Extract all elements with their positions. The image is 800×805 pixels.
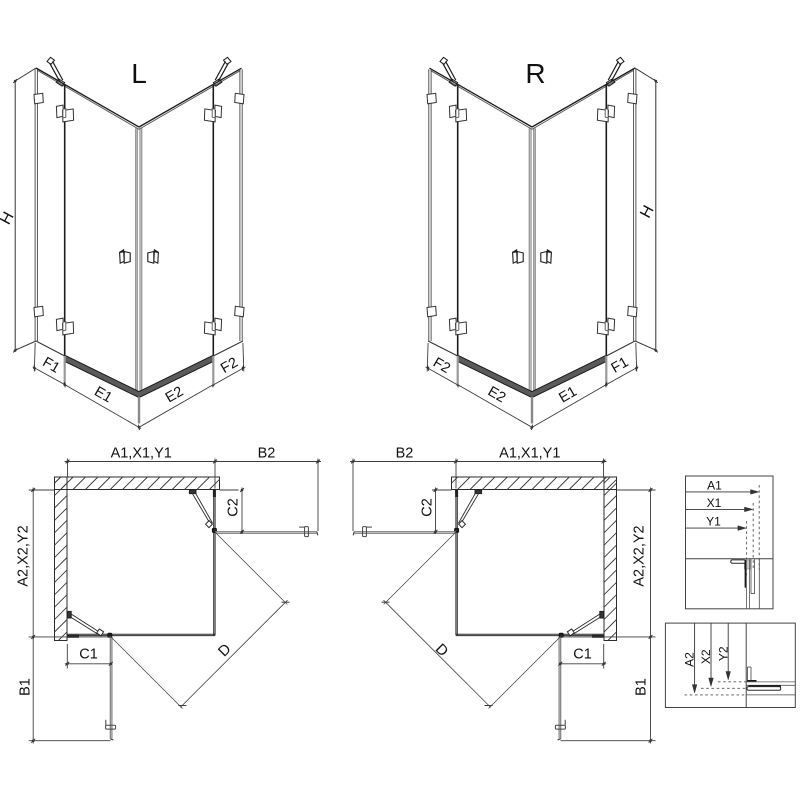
svg-text:B2: B2 — [258, 446, 276, 462]
svg-text:A1: A1 — [707, 479, 722, 493]
svg-text:C1: C1 — [573, 647, 592, 663]
svg-text:A1,X1,Y1: A1,X1,Y1 — [499, 446, 560, 462]
svg-text:X2: X2 — [699, 649, 713, 664]
svg-text:C1: C1 — [79, 647, 98, 663]
svg-text:A2,X2,Y2: A2,X2,Y2 — [16, 525, 32, 586]
svg-text:R: R — [525, 58, 545, 89]
svg-text:C2: C2 — [226, 498, 242, 517]
svg-text:A2,X2,Y2: A2,X2,Y2 — [632, 525, 648, 586]
svg-text:Y2: Y2 — [717, 646, 731, 661]
svg-text:Y1: Y1 — [706, 515, 721, 529]
svg-text:B1: B1 — [18, 678, 34, 696]
svg-text:A2: A2 — [683, 652, 697, 667]
svg-text:B2: B2 — [396, 446, 414, 462]
svg-text:A1,X1,Y1: A1,X1,Y1 — [111, 446, 172, 462]
svg-text:B1: B1 — [634, 678, 650, 696]
svg-text:L: L — [131, 58, 147, 89]
svg-text:C2: C2 — [420, 498, 436, 517]
svg-text:X1: X1 — [707, 496, 722, 510]
